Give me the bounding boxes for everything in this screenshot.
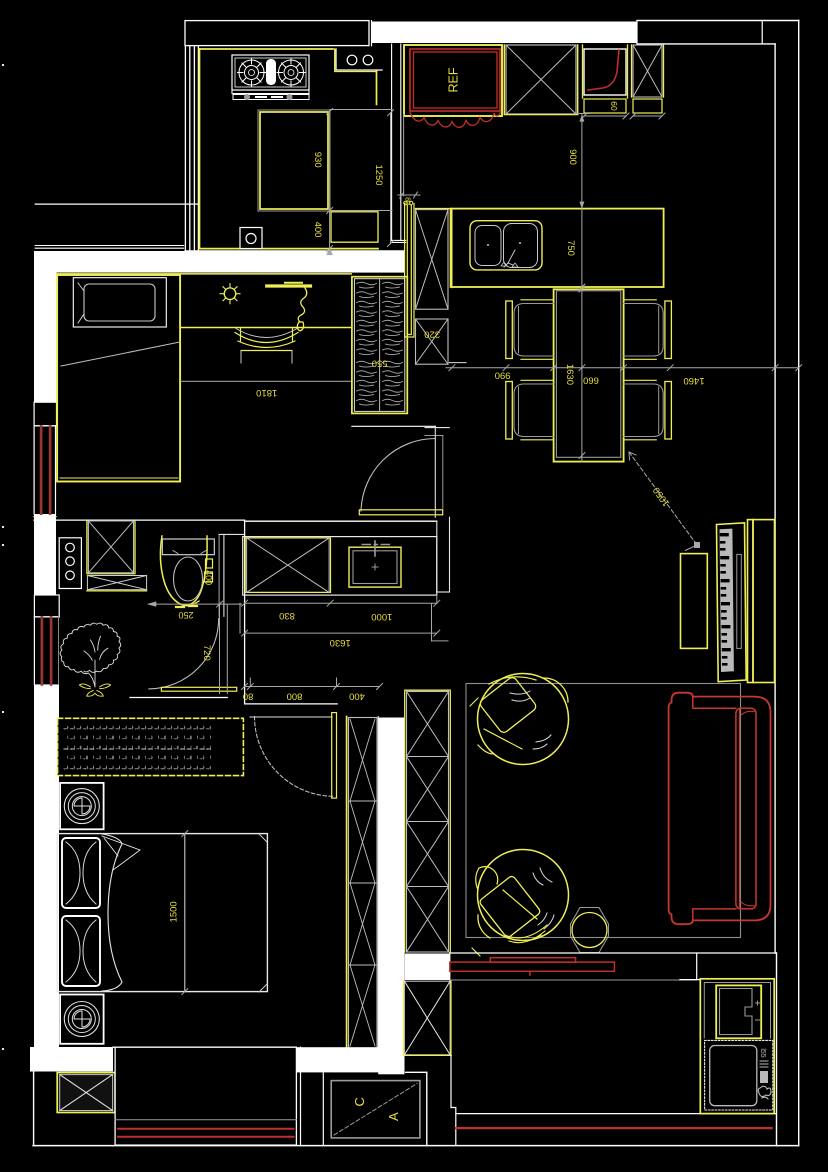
svg-text:ᆎᆎᆏᆏᆎᆏᆎᆎᆏᆏᆎᆏᆎᆎᆏᆏᆎᆏᆎᆏᆏᆎᆏ: ᆎᆎᆏᆏᆎᆏᆎᆎᆏᆏᆎᆏᆎᆎᆏᆏᆎᆏᆎᆏᆏᆎᆏ (63, 724, 212, 733)
svg-text:C: C (352, 1097, 367, 1106)
svg-text:ᆝᆉᆝᆊᆝᆉᆝᆊᆝᆉᆝᆊᆝᆉᆝᆊᆝᆉᆝᆊᆝᆉᆝ: ᆝᆉᆝᆊᆝᆉᆝᆊᆝᆉᆝᆊᆝᆉᆝᆊᆝᆉᆝᆊᆝᆉᆝ (63, 754, 212, 763)
svg-text:1630: 1630 (564, 364, 575, 385)
svg-text:800: 800 (287, 690, 303, 701)
svg-text:720: 720 (201, 645, 212, 661)
svg-text:80: 80 (404, 197, 411, 205)
svg-text:750: 750 (565, 240, 576, 256)
svg-text:990: 990 (495, 369, 511, 380)
svg-text:1460: 1460 (683, 375, 704, 386)
svg-text:400: 400 (312, 222, 323, 238)
svg-text:1000: 1000 (371, 611, 392, 622)
svg-text:930: 930 (312, 152, 323, 168)
svg-text:60: 60 (609, 101, 619, 111)
svg-text:ᆏᆎᆏᆎᆏᆎᆏᆎᆏᆎᆏᆎᆏᆎᆏᆎᆏᆎᆏᆎᆏᆎᆏ: ᆏᆎᆏᆎᆏᆎᆏᆎᆏᆎᆏᆎᆏᆎᆏᆎᆏᆎᆏᆎᆏᆎᆏ (63, 764, 212, 773)
svg-text:1250: 1250 (373, 164, 384, 185)
svg-text:320: 320 (424, 328, 440, 339)
svg-text:1630: 1630 (330, 637, 351, 648)
svg-text:1500: 1500 (169, 901, 180, 922)
svg-text:900: 900 (567, 149, 578, 165)
svg-text:550: 550 (372, 358, 388, 369)
svg-text:400: 400 (349, 690, 365, 701)
svg-text:400: 400 (204, 570, 214, 585)
svg-text:660: 660 (583, 375, 599, 386)
svg-text:REF: REF (446, 67, 460, 92)
svg-text:830: 830 (279, 610, 295, 621)
svg-text:1810: 1810 (256, 387, 277, 398)
svg-text:ᆋᆋᆌᆋᆋᆌᆋᆋᆌᆋᆋᆌᆋᆋᆌᆋᆋᆌᆋᆋᆌᆋᆋ: ᆋᆋᆌᆋᆋᆌᆋᆋᆌᆋᆋᆌᆋᆋᆌᆋᆋᆌᆋᆋᆌᆋᆋ (63, 744, 212, 753)
svg-text:ᆝᆉᆝᆊᆝᆉᆝᆊᆝᆉᆝᆊᆝᆉᆝᆊᆝᆉᆝᆊᆝᆉᆝ: ᆝᆉᆝᆊᆝᆉᆝᆊᆝᆉᆝᆊᆝᆉᆝᆊᆝᆉᆝᆊᆝᆉᆝ (63, 734, 212, 743)
svg-text:250: 250 (178, 610, 193, 620)
svg-text:l55: l55 (759, 1048, 766, 1057)
svg-text:80: 80 (243, 690, 254, 701)
svg-text:A: A (386, 1112, 401, 1121)
